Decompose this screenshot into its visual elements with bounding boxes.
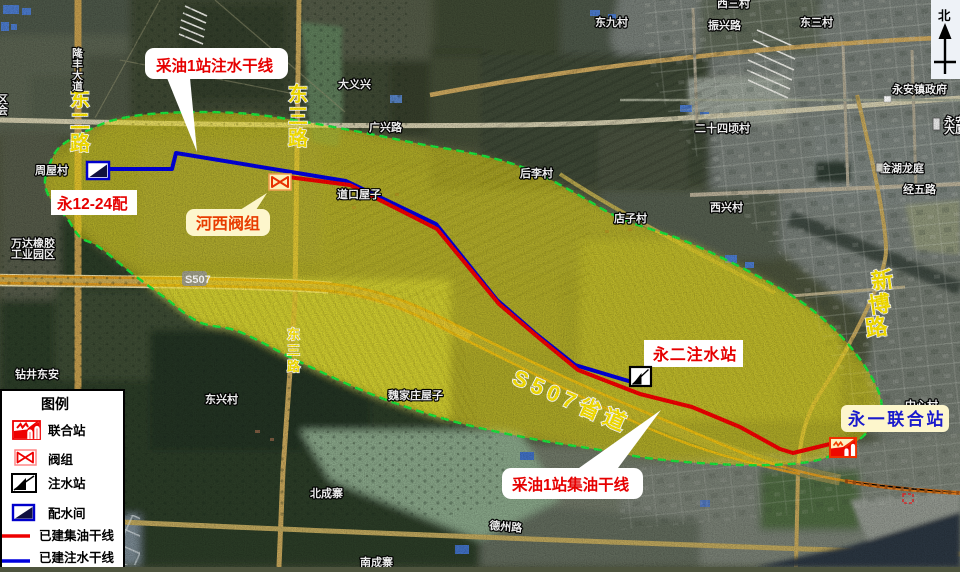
svg-text:已建集油干线: 已建集油干线 [39,528,115,543]
svg-text:新: 新 [870,267,895,295]
svg-text:永12-24配: 永12-24配 [56,194,128,213]
svg-text:北成寨: 北成寨 [310,486,343,500]
svg-text:钻井东安: 钻井东安 [15,367,59,381]
svg-text:后李村: 后李村 [520,166,553,180]
svg-text:路: 路 [864,313,890,341]
svg-text:经五路: 经五路 [903,182,937,196]
svg-text:会: 会 [0,103,9,117]
svg-text:大义兴: 大义兴 [338,77,371,91]
svg-text:三: 三 [288,106,308,128]
svg-text:配水间: 配水间 [48,506,86,521]
svg-text:东三村: 东三村 [800,15,833,29]
svg-text:广兴路: 广兴路 [369,120,403,134]
svg-text:已建注水干线: 已建注水干线 [39,550,115,565]
svg-text:工业园区: 工业园区 [11,247,55,261]
svg-text:二: 二 [70,111,90,133]
svg-text:振兴路: 振兴路 [708,18,742,32]
svg-text:二十四顷村: 二十四顷村 [695,121,750,135]
svg-text:东: 东 [287,327,300,342]
svg-text:隆: 隆 [72,46,84,60]
svg-text:采油1站集油干线: 采油1站集油干线 [511,475,630,494]
svg-text:S507: S507 [185,274,211,286]
svg-text:三: 三 [287,343,300,358]
svg-text:图例: 图例 [41,396,69,412]
svg-text:采油1站注水干线: 采油1站注水干线 [155,56,274,75]
svg-text:路: 路 [70,131,91,155]
svg-text:大厦: 大厦 [944,122,960,136]
svg-text:魏家庄屋子: 魏家庄屋子 [387,388,443,402]
svg-text:北: 北 [938,8,951,23]
svg-text:丰: 丰 [72,57,83,71]
svg-text:南成寨: 南成寨 [360,555,393,567]
svg-text:联合站: 联合站 [48,423,86,438]
svg-text:周屋村: 周屋村 [35,163,68,177]
svg-text:西兴村: 西兴村 [710,200,743,214]
svg-text:东: 东 [288,82,308,106]
svg-text:路: 路 [287,359,301,374]
svg-text:永安镇政府: 永安镇政府 [891,82,947,96]
svg-text:注水站: 注水站 [48,476,86,491]
svg-text:西三村: 西三村 [717,0,750,10]
svg-text:道口屋子: 道口屋子 [337,187,381,201]
svg-text:东兴村: 东兴村 [205,392,238,406]
svg-text:河西阀组: 河西阀组 [196,214,260,233]
svg-text:阀组: 阀组 [48,452,74,467]
svg-text:路: 路 [288,126,309,150]
svg-text:万达橡胶: 万达橡胶 [10,236,55,250]
svg-text:店子村: 店子村 [614,211,647,225]
svg-text:大: 大 [72,68,83,82]
svg-text:道: 道 [72,79,83,93]
svg-text:金湖龙庭: 金湖龙庭 [879,161,924,175]
svg-text:东九村: 东九村 [595,15,628,29]
svg-text:永二注水站: 永二注水站 [652,345,737,364]
svg-text:永一联合站: 永一联合站 [847,409,946,429]
